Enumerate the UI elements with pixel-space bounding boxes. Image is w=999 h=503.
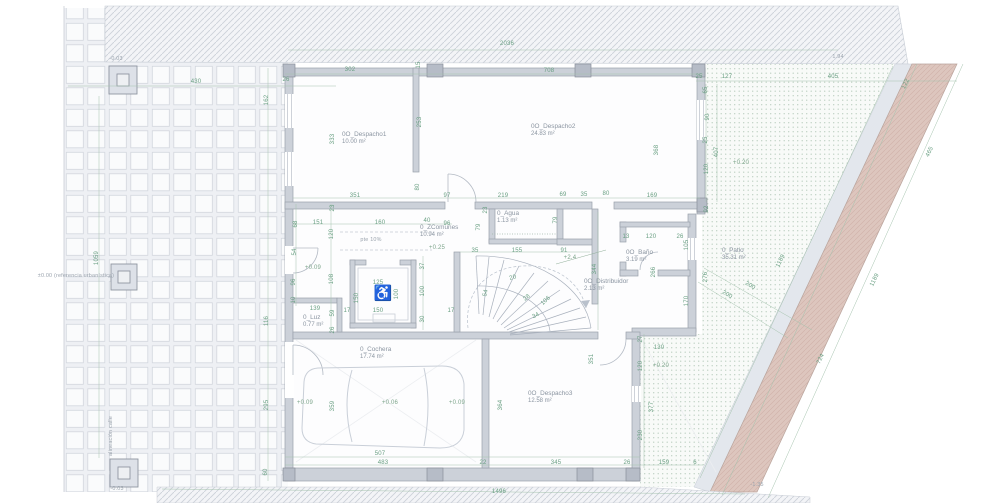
dimension-label: 54	[292, 248, 298, 255]
room-name: 0O_Despacho2	[531, 123, 575, 131]
dimension-label: 465	[925, 146, 935, 158]
dimension-label: 26	[623, 460, 630, 466]
dimension-label: 68	[293, 220, 299, 227]
room-name: 0_Agua	[497, 210, 519, 218]
dimension-label: 276	[703, 272, 709, 283]
dimension-label: 333	[330, 134, 336, 145]
dimension-label: 37	[420, 262, 426, 269]
dimension-label: 1189	[775, 254, 786, 269]
dimension-label: 65	[703, 86, 709, 93]
dimension-label: 162	[264, 95, 270, 106]
dimension-label: 150	[373, 308, 384, 314]
dimension-label: 60	[263, 468, 269, 475]
wheelchair-icon: ♿	[374, 284, 393, 302]
dimension-label: 6	[693, 460, 697, 466]
dimension-label: 170	[684, 296, 690, 307]
room-name: 0O_Despacho1	[342, 131, 386, 139]
dimension-label: 200	[721, 290, 733, 301]
dimension-label: 407	[714, 147, 720, 158]
room-area: 1.13 m²	[497, 218, 519, 226]
dimension-label: 302	[345, 67, 356, 73]
dimension-label: 368	[654, 145, 660, 156]
dimension-label: 344	[592, 264, 598, 275]
room-area: 10.94 m²	[420, 232, 458, 240]
dimension-label: 116	[264, 316, 270, 326]
dimension-label: 1059	[94, 251, 100, 265]
room-label: 0O_Despacho224.83 m²	[531, 123, 575, 138]
dimension-label: 1496	[492, 489, 506, 495]
dimension-label: 79	[553, 216, 559, 223]
room-area: 17.74 m²	[360, 354, 391, 362]
dimension-label: 120	[638, 361, 644, 372]
dimension-label: 219	[498, 193, 509, 199]
note-label: -1.35	[750, 482, 763, 488]
floor-plan-canvas: 2036430263027082512740515162333253368659…	[0, 0, 999, 503]
note-label: ±0.00 (referencia urbanística)	[38, 273, 114, 279]
dimension-label: 122	[901, 78, 911, 90]
room-label: 0_ZComunes10.94 m²	[420, 224, 458, 239]
dimension-label: 708	[544, 68, 555, 74]
dimension-label: 15	[416, 61, 422, 68]
room-area: 12.58 m²	[528, 398, 572, 406]
dimension-label: 27	[638, 335, 644, 342]
dimension-label: 80	[415, 183, 421, 190]
dimension-label: 266	[651, 267, 657, 278]
room-area: 24.83 m²	[531, 131, 575, 139]
room-label: 0O_Despacho110.00 m²	[342, 131, 386, 146]
room-name: 0O_Despacho3	[528, 390, 572, 398]
dimension-label: 35	[471, 248, 478, 254]
dimension-label: 23	[330, 204, 336, 211]
room-area: 35.31 m²	[722, 255, 746, 263]
dimension-label: 35	[580, 192, 587, 198]
room-name: 0_Luz	[303, 314, 323, 322]
level-label: +0.09	[449, 400, 465, 406]
level-label: +0.25	[429, 245, 445, 251]
dimension-label: 159	[659, 460, 670, 466]
dimension-label: 351	[589, 354, 595, 365]
dimension-label: 26	[282, 77, 289, 83]
room-label: 0O_Distribuidor2.13 m²	[584, 278, 628, 293]
dimension-label: 2036	[500, 41, 514, 47]
level-label: +2.4	[564, 255, 577, 261]
dimension-label: 105	[684, 240, 690, 251]
dimension-label: 155	[512, 248, 523, 254]
dimension-label: 483	[378, 460, 389, 466]
dimension-label: 22	[479, 460, 486, 466]
dimension-label: 106	[540, 295, 552, 307]
room-label: 0_Cochera17.74 m²	[360, 346, 391, 361]
room-area: 0.77 m²	[303, 322, 323, 330]
dimension-label: 17	[447, 308, 454, 314]
dimension-label: 253	[417, 117, 423, 128]
note-label: pte 10%	[360, 237, 381, 243]
dimension-label: 169	[647, 193, 658, 199]
room-label: 0_Patio35.31 m²	[722, 247, 746, 262]
dimension-label: 20	[509, 274, 517, 282]
dimension-label: 59	[330, 309, 336, 316]
dimension-label: 28	[522, 293, 531, 302]
dimension-label: 430	[191, 79, 202, 85]
labels-layer: 2036430263027082512740515162333253368659…	[0, 0, 999, 503]
dimension-label: 345	[551, 460, 562, 466]
dimension-label: 120	[704, 164, 710, 175]
dimension-label: 120	[329, 229, 335, 240]
level-label: +0.09	[305, 265, 321, 271]
room-name: 0O_Baño	[626, 249, 653, 257]
dimension-label: 295	[264, 400, 270, 411]
dimension-label: 230	[638, 430, 644, 441]
dimension-label: 96	[291, 278, 297, 285]
dimension-label: 364	[498, 400, 504, 411]
dimension-label: 160	[375, 220, 386, 226]
dimension-label: 100	[420, 286, 426, 297]
dimension-label: 150	[354, 293, 360, 304]
room-area: 10.00 m²	[342, 139, 386, 147]
dimension-label: 359	[330, 401, 336, 412]
dimension-label: 23	[483, 206, 489, 213]
level-label: +0.06	[382, 400, 398, 406]
dimension-label: 17	[343, 308, 350, 314]
room-label: 0_Agua1.13 m²	[497, 210, 519, 225]
dimension-label: 25	[703, 136, 709, 143]
dimension-label: 80	[602, 191, 609, 197]
dimension-label: 1189	[869, 273, 880, 288]
level-label: +0.09	[297, 400, 313, 406]
dimension-label: 25	[695, 74, 702, 80]
room-name: 0_Cochera	[360, 346, 391, 354]
dimension-label: 405	[828, 74, 839, 80]
dimension-label: 351	[350, 193, 361, 199]
dimension-label: 130	[654, 345, 665, 351]
dimension-label: 30	[420, 315, 426, 322]
dimension-label: 507	[375, 451, 386, 457]
dimension-label: 26	[330, 326, 336, 333]
note-label: -0.03	[110, 486, 123, 492]
dimension-label: 92	[704, 205, 710, 212]
dimension-label: 69	[559, 192, 566, 198]
room-name: 0O_Distribuidor	[584, 278, 628, 286]
dimension-label: 120	[646, 234, 657, 240]
note-label: alineación calle	[108, 416, 114, 456]
note-label: 1.94	[832, 54, 843, 60]
level-label: +0.20	[653, 363, 669, 369]
dimension-label: 10	[291, 296, 297, 303]
dimension-label: 100	[394, 289, 400, 300]
dimension-label: 151	[313, 220, 324, 226]
dimension-label: 26	[676, 234, 683, 240]
dimension-label: 13	[622, 234, 629, 240]
room-area: 3.19 m²	[626, 257, 653, 265]
dimension-label: 79	[476, 223, 482, 230]
room-name: 0_Patio	[722, 247, 746, 255]
level-label: +0.20	[733, 160, 749, 166]
dimension-label: 108	[329, 274, 335, 285]
room-label: 0_Luz0.77 m²	[303, 314, 323, 329]
dimension-label: 34	[532, 312, 541, 320]
room-area: 2.13 m²	[584, 286, 628, 294]
note-label: -0.03	[109, 56, 122, 62]
dimension-label: 724	[816, 353, 826, 365]
dimension-label: 200	[744, 281, 756, 292]
room-label: 0O_Despacho312.58 m²	[528, 390, 572, 405]
dimension-label: 97	[443, 193, 450, 199]
dimension-label: 90	[705, 113, 711, 120]
dimension-label: 54	[482, 289, 489, 297]
dimension-label: 127	[722, 74, 733, 80]
dimension-label: 91	[560, 248, 567, 254]
room-label: 0O_Baño3.19 m²	[626, 249, 653, 264]
room-name: 0_ZComunes	[420, 224, 458, 232]
dimension-label: 377	[649, 402, 655, 413]
dimension-label: 139	[310, 306, 321, 312]
